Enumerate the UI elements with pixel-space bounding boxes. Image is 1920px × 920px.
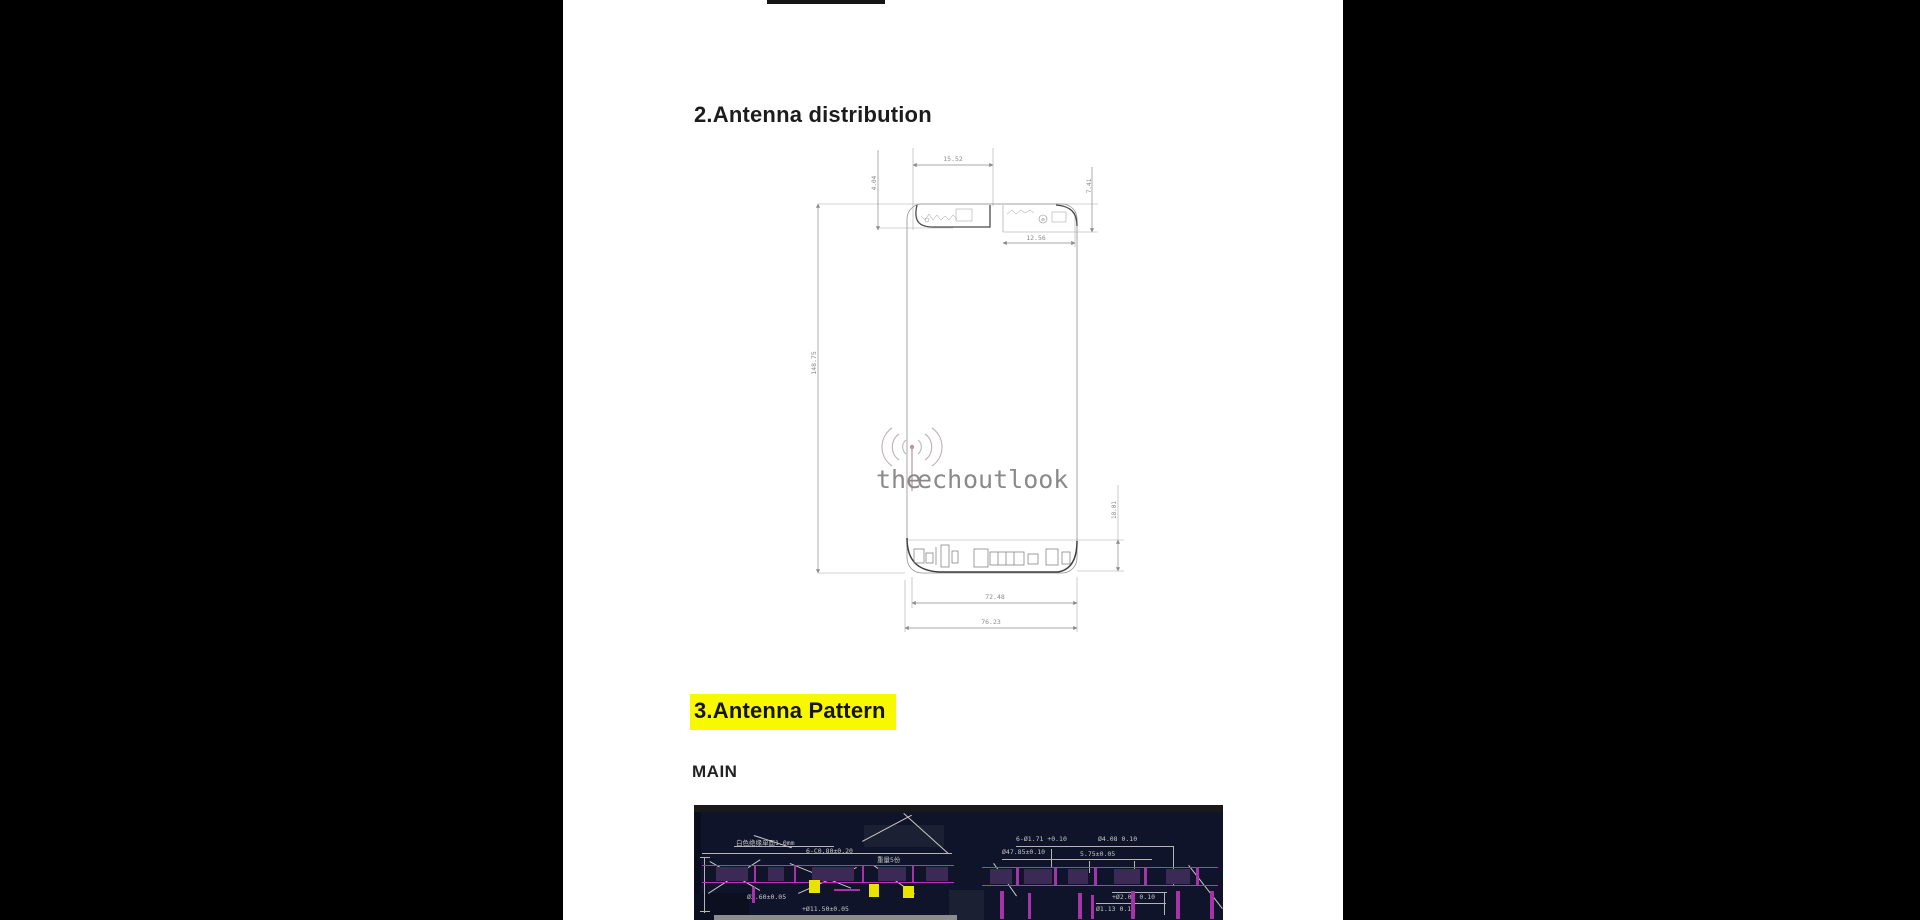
cad-leader [1188,865,1223,909]
cad-tick [1131,891,1135,919]
cad-line [1051,849,1052,867]
cad-yellow-pad [869,884,879,897]
cad-band-line [702,865,954,866]
section-2-heading: 2.Antenna distribution [694,102,932,128]
dimension-lines [818,150,1118,628]
cad-line [1002,859,1152,860]
cad-pad [1114,869,1140,884]
cad-line [700,857,710,858]
watermark: the ech outlook [876,428,1068,494]
cad-tick [1210,891,1214,919]
cad-tick [862,866,864,882]
cad-pad [926,867,948,881]
cad-band-line [702,882,954,883]
cad-line [734,846,834,847]
dim-top-cap-width: 15.52 [943,155,963,163]
cad-line [1164,893,1165,915]
cad-tick [912,866,914,882]
cad-line [700,911,710,912]
dim-top-right-width: 12.56 [1026,234,1046,242]
cad-tick [794,866,796,882]
cad-label-right1: 6-Ø1.71 +0.10 [1016,835,1067,843]
antenna-dot [910,445,914,449]
cad-tick [1091,895,1094,919]
cap-symbol-text: ⊖ [1041,217,1045,224]
cad-bg-patch [864,825,944,847]
page-top-cutoff-strip [767,0,885,4]
antenna-distribution-drawing: ⊖ 15.52 4.04 7.41 12.56 148.75 18.01 72.… [790,135,1135,650]
dim-bottom-inner-width: 72.48 [985,593,1005,601]
cad-tick [1176,891,1180,919]
cad-label-right4: 5.75±0.05 [1080,850,1115,858]
dim-body-height: 148.75 [810,351,818,375]
cad-gray-strip [714,915,957,920]
phone-outline [907,204,1077,573]
cad-line [1112,892,1167,893]
watermark-outlook: outlook [963,465,1068,494]
watermark-ech: ech [917,465,962,494]
cad-label-right6: Ø1.13 0.10 [1096,905,1135,913]
cad-tick [1078,893,1082,919]
cad-tick [1094,868,1097,885]
cad-label-left5: +Ø11.50±0.05 [802,905,849,913]
section-3-heading-highlight: 3.Antenna Pattern [690,694,896,730]
cad-tick [1016,868,1019,885]
cad-tick [752,887,755,903]
dim-bottom-outer-width: 76.23 [981,618,1001,626]
dim-top-right-height: 7.41 [1086,178,1093,193]
watermark-the: the [876,465,921,494]
cad-tick [1028,893,1031,919]
construction-lines [818,148,1124,632]
main-subsection-label: MAIN [692,762,737,782]
cad-label-right2: Ø4.08 0.10 [1098,835,1137,843]
document-page: 2.Antenna distribution [563,0,1343,920]
dim-top-left-height: 4.04 [871,175,878,190]
cad-pad [878,867,906,881]
cad-tick [754,866,756,882]
cad-pad [1068,869,1088,884]
cad-line [1016,846,1174,847]
cad-label-left3: 重量5份 [877,854,900,864]
cad-band-line [982,885,1218,886]
cad-tick [834,889,860,891]
dim-bottom-cap-height: 18.01 [1111,501,1118,519]
cad-pad [1166,869,1190,884]
cad-tick [1144,868,1147,885]
cad-pad [768,867,784,881]
cad-pad [990,869,1012,884]
cad-tick [1196,868,1199,885]
cad-yellow-pad [809,880,820,893]
cad-label-right3: Ø47.85±0.10 [1002,848,1045,856]
cad-pad [1024,869,1052,884]
section-3-heading: 3.Antenna Pattern [694,698,886,723]
cad-tick [1000,891,1004,919]
cad-tick [1054,868,1057,885]
cad-pad [812,867,854,881]
antenna-pattern-cad-image: 白色绝缘单面1.0mm 6-C0.80±0.20 重量5份 Ø2.60±0.05… [694,805,1223,920]
cad-line [702,853,952,854]
cap-annotation-symbol: ⊖ [1039,215,1047,224]
cad-top-border [694,805,1223,812]
cad-pad [716,867,748,881]
cad-yellow-pad [903,886,914,898]
